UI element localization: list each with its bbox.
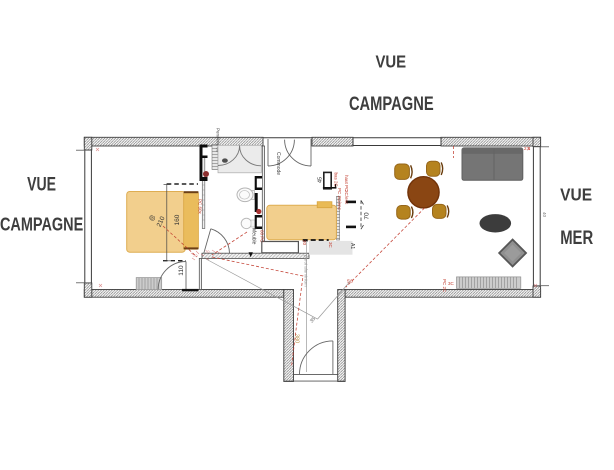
svg-text:70: 70 [193,253,198,258]
svg-text:PC 60x: PC 60x [197,199,202,215]
svg-text:160: 160 [174,214,181,225]
svg-text:380: 380 [294,334,300,343]
svg-text:Meuble: Meuble [251,228,257,245]
svg-text:5'6: 5'6 [347,279,353,284]
svg-text:40: 40 [542,212,547,218]
svg-text:2,5: 2,5 [524,146,531,151]
svg-text:MER: MER [560,228,593,249]
svg-text:3C: 3C [448,281,455,286]
svg-text:110: 110 [178,265,185,276]
svg-text:bas 2C: bas 2C [334,173,339,188]
svg-text:PC 2C: PC 2C [442,279,447,293]
svg-text:VUE: VUE [375,52,406,72]
svg-text:@: @ [150,215,156,221]
svg-text:3C: 3C [328,242,333,249]
svg-text:paroi aluminium: paroi aluminium [304,255,309,287]
svg-text:VUE: VUE [27,174,56,196]
svg-text:70: 70 [205,249,210,254]
svg-text:A1: A1 [349,243,355,249]
svg-text:Commode: Commode [275,152,281,175]
svg-text:70: 70 [364,212,371,220]
svg-text:VUE: VUE [560,184,592,204]
svg-text:20: 20 [302,240,307,246]
svg-text:CAMPAGNE: CAMPAGNE [0,214,83,235]
svg-text:PC 2C/enc: PC 2C/enc [337,188,342,211]
svg-text:45: 45 [318,177,324,183]
svg-text:60 PC: 60 PC [260,230,265,243]
svg-text:3C/enc: 3C/enc [344,190,349,205]
svg-text:CAMPAGNE: CAMPAGNE [349,94,434,115]
